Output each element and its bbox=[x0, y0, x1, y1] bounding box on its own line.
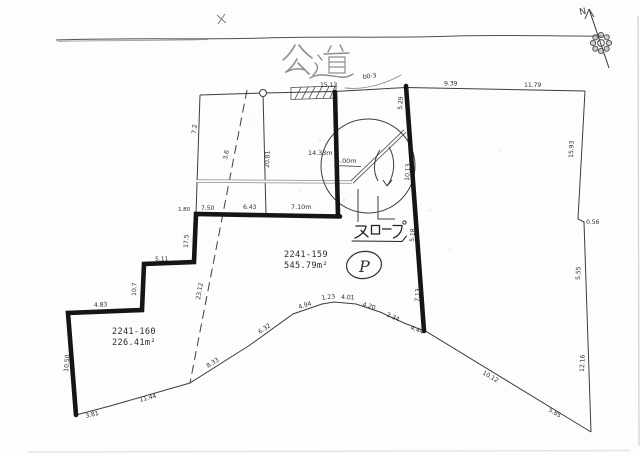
parcel-main-area: 545.79m² bbox=[284, 261, 328, 271]
parcel-west-number: 2241-160 bbox=[112, 327, 156, 337]
dim-south-2: 11.44 bbox=[139, 393, 158, 404]
dim-road-line-3: 5.18 bbox=[409, 228, 417, 242]
road-label-kanji bbox=[283, 45, 401, 88]
road-edge-line bbox=[56, 35, 602, 40]
dim-stair-h1: 5.11 bbox=[155, 256, 169, 263]
dim-right-lower: 12.16 bbox=[579, 354, 587, 372]
dim-ramp-width: 4.00m bbox=[336, 157, 356, 165]
stepped-boundary-thick-line bbox=[68, 214, 340, 415]
parking-mark: P bbox=[345, 249, 383, 281]
parcel-boundary-bottom bbox=[76, 302, 591, 432]
scan-noise bbox=[249, 119, 501, 251]
dim-stair-top: 1.80 bbox=[178, 207, 191, 213]
boundary-post-line bbox=[335, 92, 338, 216]
compass-north-label: N bbox=[579, 7, 588, 18]
dim-south-5: 4.94 bbox=[298, 300, 313, 311]
dim-dashed-lower: 23.12 bbox=[195, 282, 205, 300]
site-plan-drawing: N P bbox=[0, 0, 640, 455]
dim-se-edge-b: 5.85 bbox=[547, 407, 562, 420]
dim-south-3: 8.33 bbox=[205, 357, 220, 370]
survey-point-marker bbox=[260, 90, 267, 97]
dim-road-line-2: 10.13 bbox=[404, 163, 412, 181]
parcel-west-area: 226.41m² bbox=[112, 338, 156, 348]
dim-right-step: 0.56 bbox=[586, 219, 600, 226]
dim-top-right-b: 11.79 bbox=[524, 82, 541, 89]
paper-edge-right bbox=[638, 16, 639, 446]
dim-inner-vertical: 20.81 bbox=[264, 150, 272, 168]
dim-ramp-length: 14.33m bbox=[308, 149, 333, 157]
dim-mid-row-c: 7.10m bbox=[291, 203, 311, 211]
dim-stair-v1: 17.5 bbox=[183, 234, 190, 248]
parcel-boundary-right bbox=[578, 91, 591, 432]
dim-se-edge-a: 10.12 bbox=[481, 370, 500, 385]
scan-x-mark bbox=[217, 14, 226, 24]
dim-nw-edge: 7.2 bbox=[191, 124, 199, 134]
dim-south-1: 3.81 bbox=[85, 410, 100, 420]
parking-label: P bbox=[358, 257, 370, 276]
dim-south-9: 2.34 bbox=[385, 311, 400, 323]
dim-south-4: 6.32 bbox=[257, 322, 272, 335]
dim-top-seg: 15.13 bbox=[320, 82, 337, 89]
dim-stair-h2: 4.83 bbox=[94, 301, 108, 309]
dim-right-mid: 5.55 bbox=[575, 266, 582, 280]
dim-road-line-4: 7.13 bbox=[414, 288, 422, 302]
dim-dashed-upper: 3.6 bbox=[222, 149, 231, 160]
parcel-main-number: 2241-159 bbox=[284, 250, 328, 260]
dim-stair-v2: 10.7 bbox=[131, 282, 138, 296]
paper-edge-bottom bbox=[28, 451, 630, 453]
benchmark-label: b0-3 bbox=[362, 72, 377, 81]
dim-right-upper: 15.93 bbox=[568, 140, 576, 158]
compass-rose: N bbox=[579, 7, 612, 68]
scanned-site-plan: N P bbox=[0, 0, 640, 455]
slope-label-kanji bbox=[352, 221, 407, 242]
dim-road-line-1: 5.29 bbox=[397, 96, 405, 110]
parcel-boundary-northwest bbox=[196, 95, 200, 214]
dim-top-right-a: 9.39 bbox=[444, 81, 458, 88]
dim-mid-row-b: 6.43 bbox=[243, 204, 257, 211]
dim-mid-row-a: 7.50 bbox=[201, 205, 215, 212]
dim-south-8: 4.20 bbox=[361, 301, 376, 312]
dim-south-7: 4.01 bbox=[341, 294, 355, 301]
slope-leader-lines bbox=[358, 189, 395, 222]
dim-south-6: 1.23 bbox=[321, 293, 335, 302]
